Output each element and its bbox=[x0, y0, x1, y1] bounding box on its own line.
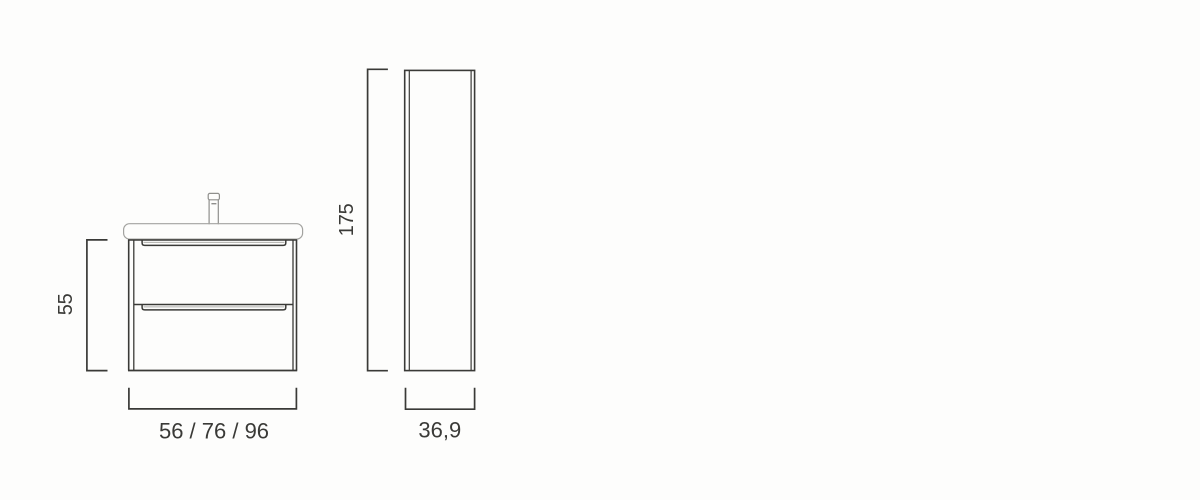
svg-text:56 / 76 / 96: 56 / 76 / 96 bbox=[159, 418, 269, 443]
svg-text:175: 175 bbox=[336, 203, 358, 236]
svg-text:36,9: 36,9 bbox=[418, 418, 461, 443]
svg-text:55: 55 bbox=[55, 293, 77, 315]
